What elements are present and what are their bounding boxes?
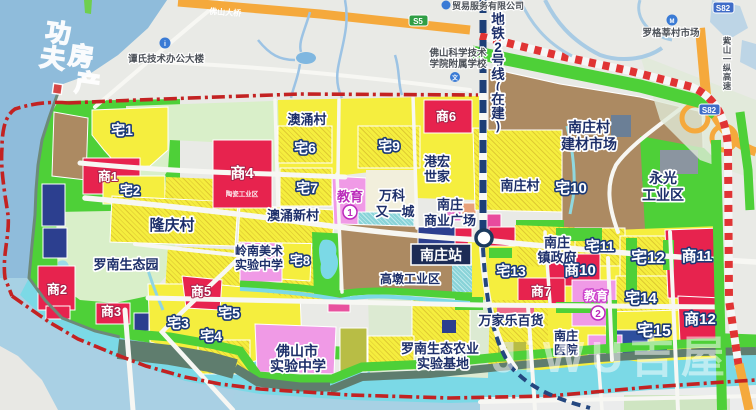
svg-text:实验中学: 实验中学 (235, 257, 283, 272)
svg-text:宅7: 宅7 (296, 180, 318, 196)
svg-text:商6: 商6 (436, 109, 456, 124)
svg-text:南庄村: 南庄村 (568, 119, 610, 135)
svg-text:1: 1 (347, 208, 353, 219)
svg-text:学院附属学校: 学院附属学校 (429, 58, 487, 70)
svg-text:M: M (670, 19, 675, 25)
svg-text:商5: 商5 (191, 284, 211, 299)
svg-text:陶瓷工业区: 陶瓷工业区 (226, 189, 259, 198)
svg-text:教育: 教育 (336, 189, 363, 204)
svg-text:澳涌新村: 澳涌新村 (267, 208, 319, 223)
svg-text:速: 速 (723, 81, 732, 91)
svg-text:S5: S5 (413, 17, 423, 26)
svg-text:宅4: 宅4 (200, 328, 222, 344)
svg-text:港宏: 港宏 (424, 154, 450, 169)
svg-text:隆庆村: 隆庆村 (149, 216, 194, 234)
svg-text:商10: 商10 (564, 261, 596, 279)
svg-text:罗南生态园: 罗南生态园 (93, 257, 158, 272)
svg-text:谭氏技术办公大楼: 谭氏技术办公大楼 (128, 53, 205, 65)
svg-text:宅3: 宅3 (167, 315, 189, 331)
svg-text:铁: 铁 (491, 25, 505, 41)
svg-text:罗格莘村市场: 罗格莘村市场 (642, 27, 700, 39)
svg-text:号: 号 (491, 53, 505, 68)
svg-text:南庄站: 南庄站 (420, 247, 462, 263)
svg-text:建材市场: 建材市场 (561, 136, 617, 152)
svg-text:商4: 商4 (230, 164, 254, 182)
svg-text:商业广场: 商业广场 (424, 213, 476, 228)
svg-text:万家乐百货: 万家乐百货 (477, 313, 543, 328)
svg-text:2: 2 (595, 309, 601, 320)
svg-text:商2: 商2 (47, 282, 67, 297)
svg-text:实验中学: 实验中学 (270, 358, 326, 374)
svg-text:JiWU吉屋: JiWU吉屋 (492, 333, 732, 382)
svg-text:房: 房 (67, 40, 96, 72)
svg-text:工业区: 工业区 (642, 187, 684, 203)
svg-text:地: 地 (491, 11, 505, 27)
svg-text:S82: S82 (702, 106, 717, 115)
svg-text:商11: 商11 (682, 247, 713, 265)
svg-text:i: i (164, 41, 166, 48)
svg-text:岭南美术: 岭南美术 (235, 243, 283, 258)
svg-text:宅5: 宅5 (218, 305, 240, 321)
svg-text:南庄: 南庄 (544, 235, 570, 250)
svg-text:佛山市: 佛山市 (275, 343, 318, 359)
svg-text:高墩工业区: 高墩工业区 (380, 271, 440, 286)
svg-text:宅14: 宅14 (625, 289, 657, 307)
svg-text:教育: 教育 (583, 288, 608, 303)
svg-text:商7: 商7 (531, 284, 551, 299)
svg-text:S82: S82 (716, 4, 731, 13)
svg-text:商3: 商3 (101, 304, 121, 319)
svg-text:宅6: 宅6 (294, 140, 316, 156)
svg-text:罗南生态农业: 罗南生态农业 (401, 341, 479, 356)
svg-text:商1: 商1 (98, 169, 118, 184)
svg-text:世家: 世家 (424, 169, 451, 184)
svg-text:南庄村: 南庄村 (500, 178, 539, 193)
svg-text:宅2: 宅2 (120, 183, 140, 198)
svg-text:佛山科学技术: 佛山科学技术 (428, 47, 487, 59)
svg-text:宅1: 宅1 (111, 122, 133, 138)
svg-text:实验基地: 实验基地 (417, 356, 469, 371)
svg-text:夫: 夫 (38, 43, 68, 74)
svg-text:在: 在 (491, 91, 505, 107)
svg-text:澳涌村: 澳涌村 (287, 112, 326, 127)
svg-text:): ) (496, 119, 500, 133)
svg-text:宅10: 宅10 (555, 179, 587, 197)
svg-text:文: 文 (451, 74, 459, 82)
svg-text:宅11: 宅11 (586, 238, 615, 254)
svg-text:宅9: 宅9 (378, 138, 400, 154)
svg-text:贸易服务有限公司: 贸易服务有限公司 (452, 0, 524, 11)
svg-text:南庄: 南庄 (437, 197, 463, 212)
svg-text:产: 产 (73, 68, 102, 99)
svg-text:宅8: 宅8 (290, 253, 310, 268)
svg-text:万科: 万科 (378, 188, 405, 203)
svg-text:永光: 永光 (648, 170, 677, 186)
svg-text:宅13: 宅13 (496, 263, 526, 279)
svg-text:宅12: 宅12 (631, 248, 665, 267)
svg-text:又一城: 又一城 (374, 204, 414, 219)
svg-text:商12: 商12 (684, 310, 716, 328)
